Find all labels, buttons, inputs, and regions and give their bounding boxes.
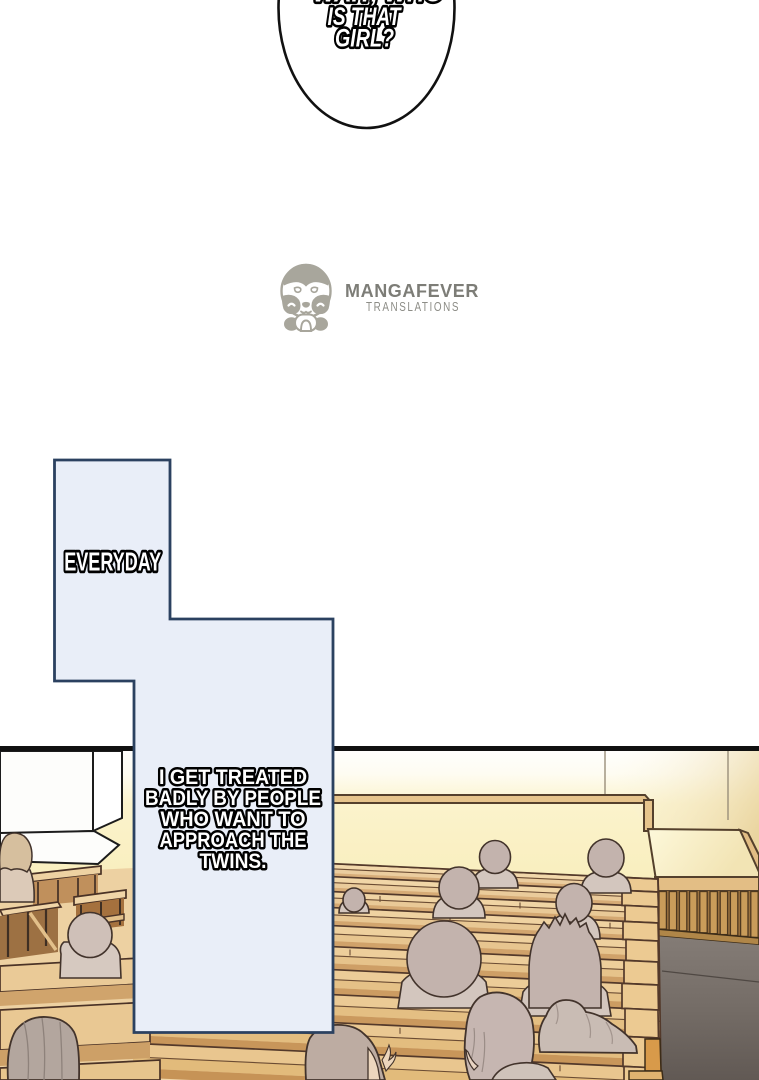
svg-text:TWINS.: TWINS. (200, 850, 267, 873)
svg-text:I GET TREATED: I GET TREATED (159, 766, 307, 789)
svg-text:GIRL?: GIRL? (335, 25, 394, 53)
svg-text:WHO WANT TO: WHO WANT TO (161, 808, 306, 831)
svg-text:EVERYDAY: EVERYDAY (64, 547, 161, 577)
svg-text:MANGAFEVER: MANGAFEVER (345, 281, 479, 301)
svg-text:APPROACH THE: APPROACH THE (160, 829, 307, 852)
svg-text:TRANSLATIONS: TRANSLATIONS (366, 300, 460, 314)
svg-text:BADLY BY PEOPLE: BADLY BY PEOPLE (145, 787, 321, 810)
